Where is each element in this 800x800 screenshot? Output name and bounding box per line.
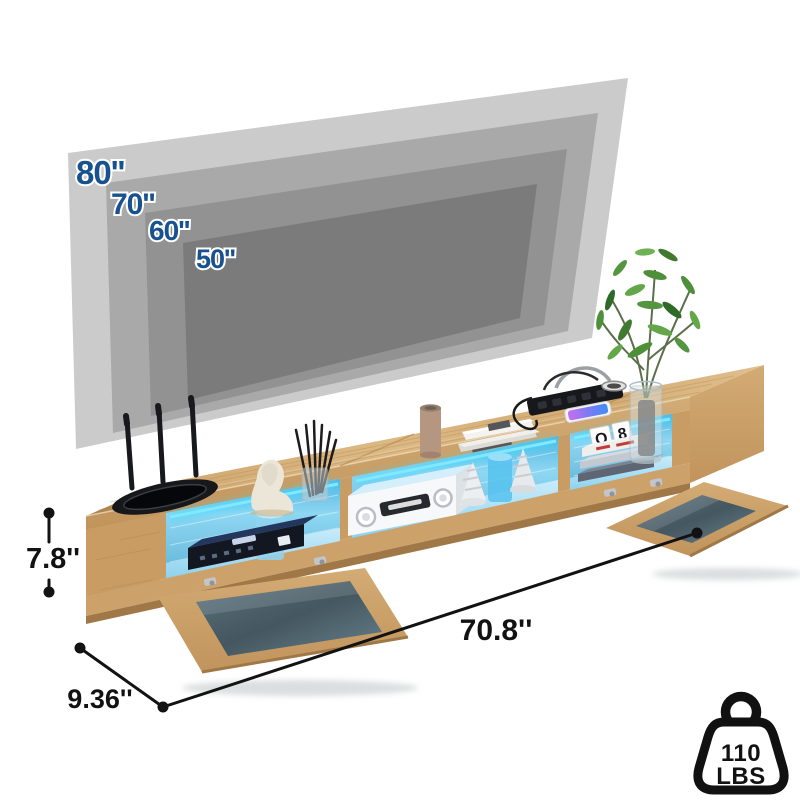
tv-size-label-60: 60'' (149, 215, 190, 246)
product-dimension-diagram: { "tv_size_chart": { "label_color": "#17… (0, 0, 800, 800)
cable-grommet (602, 381, 626, 391)
plant-foliage (595, 246, 703, 361)
dimension-width-label: 70.8'' (460, 614, 533, 647)
vase-base (631, 456, 661, 464)
plant-branches (602, 270, 694, 398)
dimension-height-label: 7.8'' (26, 543, 80, 575)
weight-unit: LBS (716, 763, 766, 790)
tv-size-label-80: 80'' (76, 154, 125, 191)
decor-cylinder-vase (420, 404, 441, 458)
dimension-depth: 9.36'' (67, 643, 163, 715)
door-shadow-right (652, 568, 800, 580)
tv-size-chart: 80'' 70'' 60'' 50'' (68, 78, 628, 449)
dimension-depth-label: 9.36'' (67, 684, 132, 714)
vase-glass (630, 386, 662, 460)
weight-capacity-icon: 110 LBS (698, 697, 784, 791)
tv-size-label-50: 50'' (196, 244, 235, 274)
dimension-height: 7.8'' (26, 508, 80, 598)
diagram-canvas: 80'' 70'' 60'' 50'' (0, 0, 800, 800)
